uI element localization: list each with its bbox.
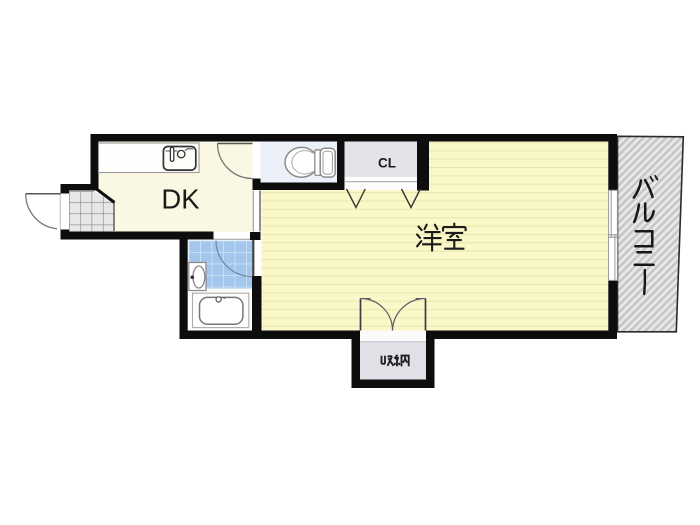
- svg-text:CL: CL: [378, 156, 396, 171]
- svg-text:DK: DK: [161, 184, 200, 215]
